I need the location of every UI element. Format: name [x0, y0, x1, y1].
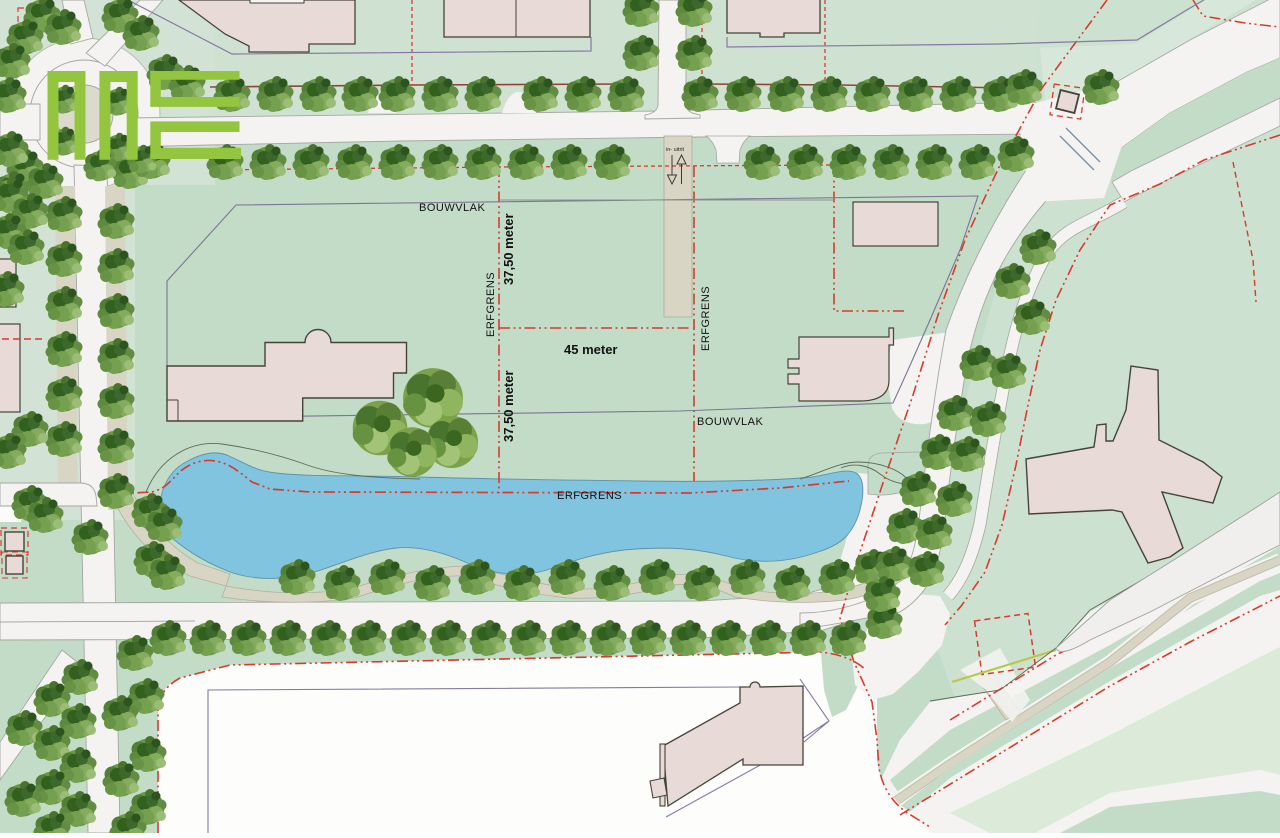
svg-text:ERFGRENS: ERFGRENS [700, 286, 712, 351]
svg-text:45 meter: 45 meter [564, 342, 617, 357]
svg-text:ERFGRENS: ERFGRENS [485, 272, 497, 337]
svg-text:ERFGRENS: ERFGRENS [557, 490, 622, 502]
svg-text:BOUWVLAK: BOUWVLAK [419, 202, 486, 214]
svg-text:37,50 meter: 37,50 meter [501, 213, 516, 285]
svg-text:in- uitrit: in- uitrit [666, 147, 685, 153]
svg-text:37,50 meter: 37,50 meter [501, 370, 516, 442]
svg-text:BOUWVLAK: BOUWVLAK [697, 416, 764, 428]
